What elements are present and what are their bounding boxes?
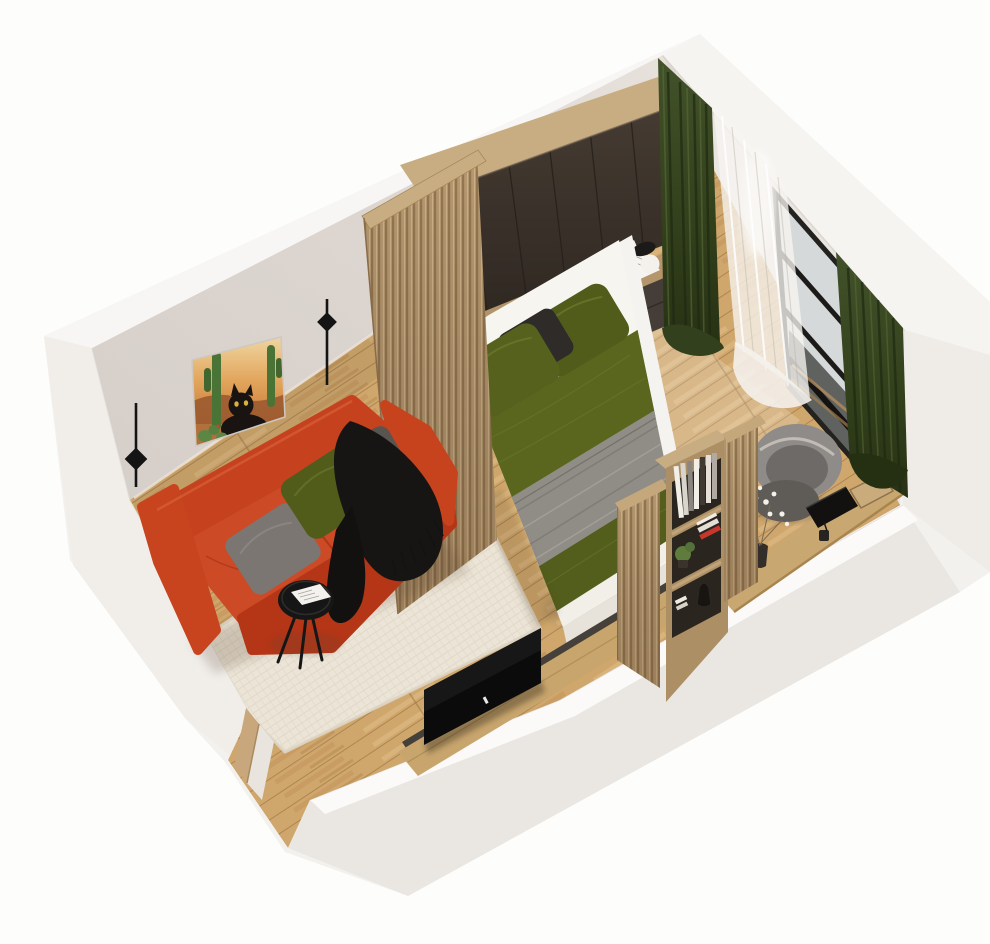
floorplan-render — [0, 0, 990, 944]
floorplan-render-stage — [0, 0, 990, 944]
